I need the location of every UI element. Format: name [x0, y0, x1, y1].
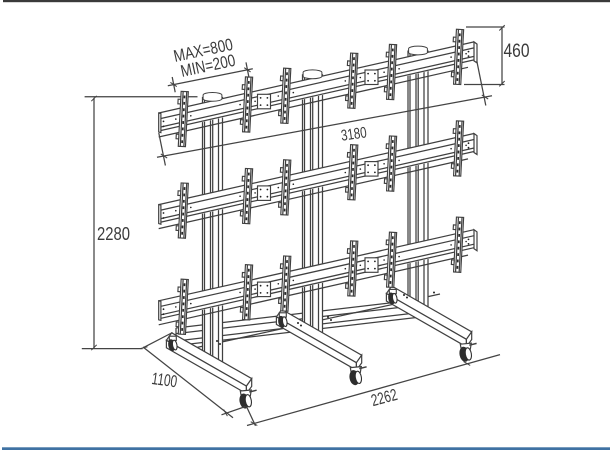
svg-text:3180: 3180	[340, 124, 368, 144]
svg-text:460: 460	[504, 39, 530, 61]
svg-text:2280: 2280	[97, 223, 130, 244]
svg-text:1100: 1100	[150, 370, 178, 392]
